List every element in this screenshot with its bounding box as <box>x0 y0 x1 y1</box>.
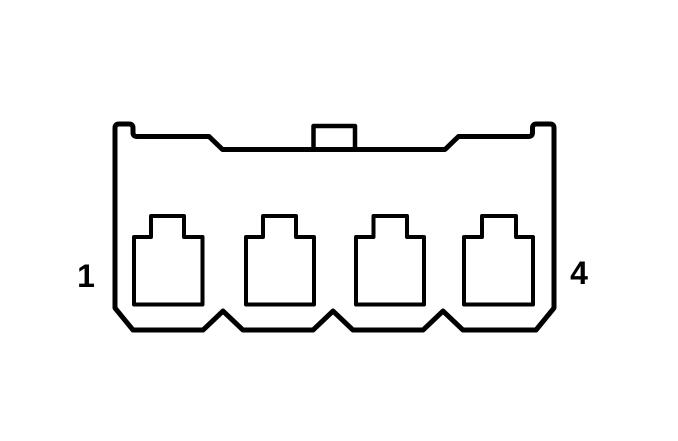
lock-tab <box>314 126 356 150</box>
connector-body-outline <box>115 124 554 330</box>
terminal-cavity-1 <box>134 216 203 305</box>
terminal-cavity-2 <box>246 216 314 305</box>
terminal-cavity-3 <box>356 216 424 305</box>
pin-label-right: 4 <box>570 255 588 291</box>
terminal-cavity-4 <box>464 216 533 305</box>
pin-label-left: 1 <box>77 258 95 294</box>
connector-diagram: 1 4 <box>0 0 678 441</box>
connector-drawing: 1 4 <box>0 0 678 441</box>
